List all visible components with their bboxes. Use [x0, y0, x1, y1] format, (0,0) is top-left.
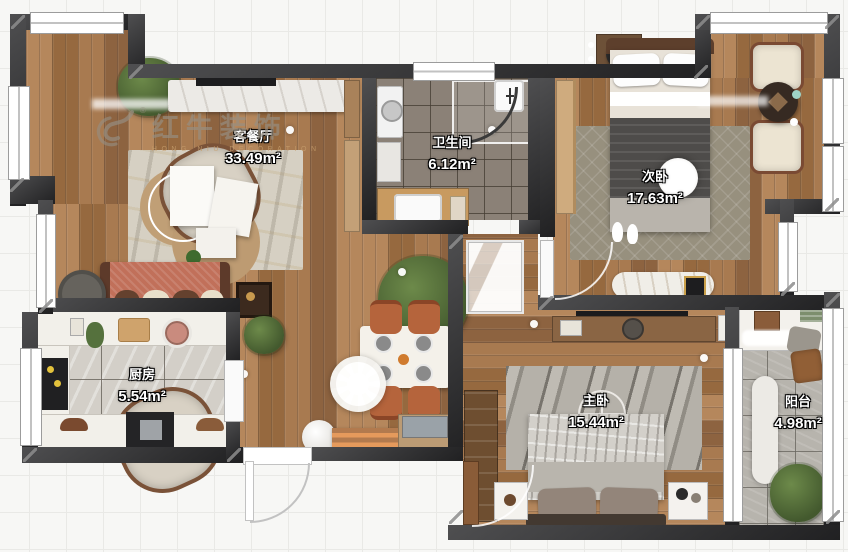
bedroom2-door-leaf: [540, 240, 554, 298]
corner-hatch-icon: [39, 299, 53, 313]
corner-hatch-icon: [825, 198, 839, 212]
cooktop-knob: [47, 366, 54, 373]
plate: [414, 364, 433, 383]
nightstand: [668, 482, 708, 520]
floor-plan: 客餐厅 33.49m² 卫生间 6.12m² 次卧 17.63m² 厨房 5.5…: [0, 0, 848, 552]
room-name: 主卧: [568, 394, 624, 408]
wall-segment: [22, 447, 243, 463]
window: [30, 12, 124, 34]
vanity-sink: [394, 194, 442, 222]
wall-segment: [538, 295, 840, 310]
bottle: [70, 318, 84, 336]
window: [710, 12, 828, 34]
corner-hatch-icon: [23, 448, 37, 462]
wall-segment: [226, 312, 240, 362]
corner-hatch-icon: [694, 65, 708, 79]
corner-hatch-icon: [825, 15, 839, 29]
brand-watermark: ® 红牛装饰 HONG NIU DECORATION: [92, 106, 321, 154]
corner-hatch-icon: [449, 235, 463, 249]
corner-hatch-icon: [11, 15, 25, 29]
corner-hatch-icon: [696, 15, 710, 29]
shoe-cabinet-top: [402, 416, 448, 438]
corner-hatch-icon: [826, 293, 840, 307]
floor-plant: [244, 316, 284, 354]
oven-door: [140, 420, 162, 440]
kitchen-sink: [162, 318, 192, 348]
picture-frame: [236, 282, 272, 318]
window: [723, 348, 743, 522]
tall-cabinet: [344, 140, 360, 232]
bed-sheet-fold: [610, 92, 710, 106]
plate: [414, 334, 433, 353]
room-area: 17.63m²: [627, 191, 683, 207]
room-area: 15.44m²: [568, 415, 624, 431]
wall-segment: [362, 78, 376, 220]
room-label-master: 主卧 15.44m²: [568, 394, 624, 430]
registered-mark: ®: [140, 106, 146, 115]
food-bowl: [398, 354, 409, 365]
ceiling-light: [530, 320, 538, 328]
teal-cup: [792, 90, 801, 99]
wall-segment: [310, 447, 463, 461]
wall-segment: [362, 220, 468, 234]
cooktop-strip: [196, 78, 276, 86]
window: [20, 348, 42, 446]
window: [822, 308, 844, 522]
kitchen-door: [224, 360, 244, 422]
room-name: 厨房: [118, 368, 166, 382]
accent-chair: [750, 120, 804, 174]
corner-hatch-icon: [826, 510, 840, 524]
frame-gold-accent: [246, 292, 255, 301]
cushion: [790, 348, 824, 384]
room-name: 阳台: [774, 395, 822, 409]
ceiling-light: [398, 268, 406, 276]
balcony-plant: [770, 464, 826, 522]
vegetables: [86, 322, 104, 348]
corner-hatch-icon: [129, 65, 143, 79]
dining-chair: [370, 300, 402, 334]
nightstand-decor: [676, 488, 688, 500]
room-area: 5.54m²: [118, 389, 166, 405]
cutting-board: [118, 318, 150, 342]
window: [8, 86, 30, 180]
sheer-curtain: [698, 96, 768, 106]
console-decor: [560, 320, 582, 336]
room-label-bedroom2: 次卧 17.63m²: [627, 170, 683, 206]
brand-name: 红牛装饰: [152, 106, 321, 145]
nightstand-decor: [691, 493, 701, 503]
corner-hatch-icon: [227, 448, 241, 462]
cooktop-knob: [54, 380, 61, 387]
corner-hatch-icon: [781, 282, 795, 296]
wood-bowl: [60, 418, 88, 431]
bull-logo-icon: [92, 106, 140, 154]
corner-hatch-icon: [449, 510, 463, 524]
ceiling-light: [700, 354, 708, 362]
console-clock: [622, 318, 644, 340]
decor-dot: [588, 56, 594, 62]
tall-cabinet: [344, 80, 360, 138]
wall-segment: [38, 298, 240, 312]
window: [413, 62, 495, 81]
plate: [374, 334, 393, 353]
coffee-table: [196, 228, 236, 258]
washer-drum: [381, 100, 403, 122]
decor-dot: [790, 118, 798, 126]
dining-chair: [408, 300, 440, 334]
window: [822, 78, 844, 144]
room-area: 6.12m²: [428, 157, 476, 173]
wall-segment: [448, 234, 463, 461]
bathroom-glass-door: [466, 240, 524, 314]
room-name: 次卧: [627, 170, 683, 184]
wall-segment: [448, 525, 840, 540]
room-label-balcony: 阳台 4.98m²: [774, 395, 822, 431]
storage-box: [754, 311, 780, 331]
room-label-bathroom: 卫生间 6.12m²: [428, 136, 476, 172]
wardrobe: [556, 80, 576, 214]
room-name: 卫生间: [428, 136, 476, 150]
brand-subtitle: HONG NIU DECORATION: [152, 146, 321, 153]
decor-dot: [588, 42, 594, 48]
wood-bowl: [196, 418, 224, 431]
slipper: [612, 222, 623, 242]
bath-shelf: [377, 142, 401, 182]
corner-hatch-icon: [10, 178, 24, 192]
corner-hatch-icon: [539, 296, 553, 310]
slipper: [627, 224, 638, 244]
vanity-items: [450, 196, 466, 222]
room-label-kitchen: 厨房 5.54m²: [118, 368, 166, 404]
wall-segment: [540, 78, 555, 237]
window: [36, 214, 56, 308]
coffee-table: [170, 166, 214, 226]
pendant-lamp-flower: [330, 356, 386, 412]
room-area: 4.98m²: [774, 416, 822, 432]
